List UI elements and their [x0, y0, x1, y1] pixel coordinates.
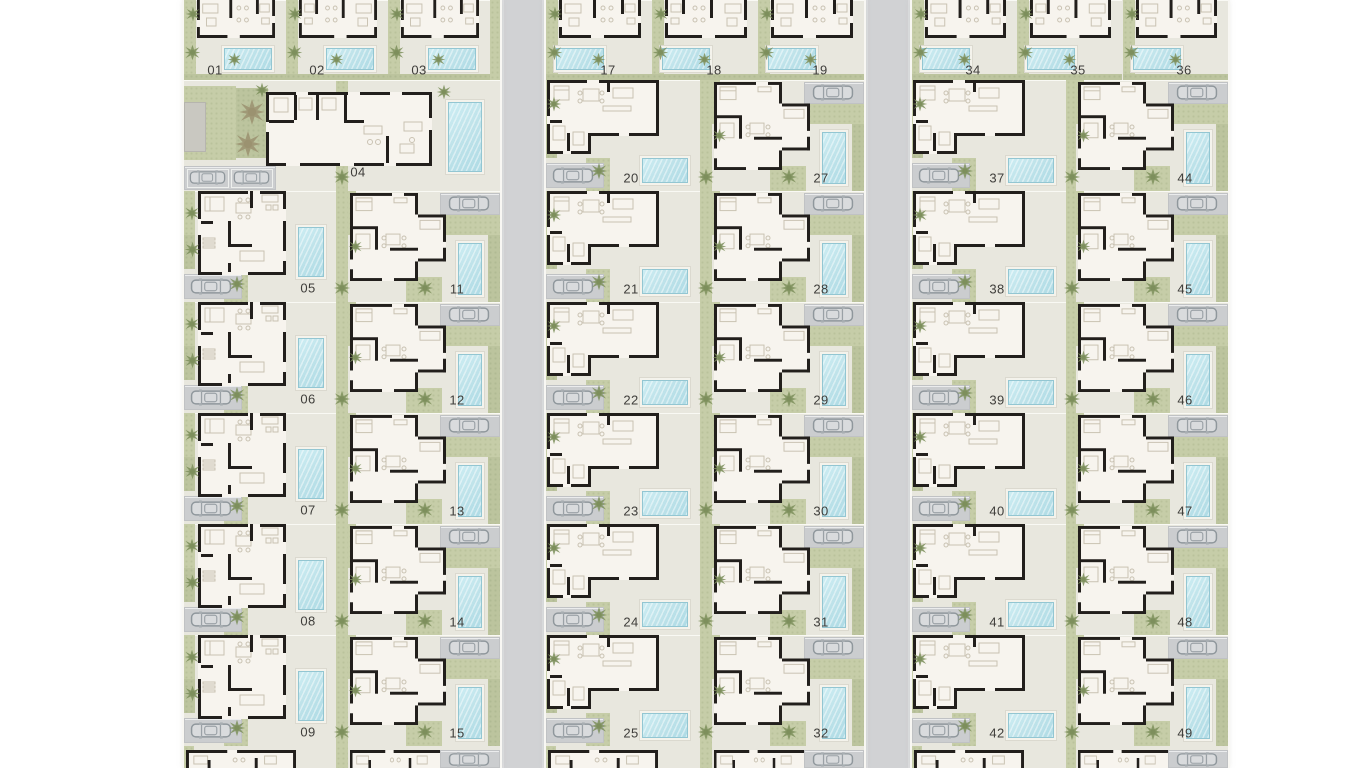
garden-strip [488, 235, 500, 302]
house-floorplan [1030, 0, 1111, 38]
house-floorplan [1078, 750, 1172, 768]
house-floorplan [665, 0, 747, 38]
plot-number: 35 [1070, 63, 1085, 78]
car-icon [552, 278, 594, 295]
car-icon [1176, 84, 1218, 101]
plot-number: 29 [813, 393, 828, 408]
car-icon [812, 84, 854, 101]
plot-number: 28 [813, 282, 828, 297]
tree-icon [184, 574, 201, 591]
plot-top: 02 [286, 0, 388, 80]
plot-number: 27 [813, 171, 828, 186]
house-floorplan [548, 750, 658, 768]
tree-icon [184, 463, 201, 480]
plot: 31 [712, 524, 864, 635]
garden-strip [1216, 124, 1228, 191]
house-floorplan [913, 191, 1025, 265]
tree-icon [184, 685, 201, 702]
plot-number: 11 [450, 282, 464, 297]
tree-icon [184, 44, 201, 61]
garden-strip [852, 346, 864, 413]
tree-icon [1076, 350, 1091, 365]
tree-icon [329, 52, 344, 67]
house-floorplan [186, 750, 296, 768]
tree-icon [546, 318, 562, 334]
car-icon [1176, 639, 1218, 656]
garden-strip [490, 0, 500, 80]
plot: 32 [712, 635, 864, 746]
tree-icon [956, 495, 974, 513]
tree-icon [1017, 44, 1034, 61]
car-icon [812, 417, 854, 434]
car-icon [552, 500, 594, 517]
house-floorplan [913, 80, 1025, 154]
pool [446, 100, 484, 174]
plot-number: 05 [300, 281, 315, 296]
garden-strip [1166, 215, 1228, 235]
tree-icon [228, 386, 246, 404]
tree-icon [956, 384, 974, 402]
tree-icon [1076, 128, 1091, 143]
tree-icon [228, 719, 246, 737]
tree-icon [546, 429, 562, 445]
tree-icon [1018, 6, 1034, 22]
house-floorplan [1078, 415, 1174, 503]
plot-number: 15 [449, 726, 464, 741]
plot-number: 20 [623, 171, 638, 186]
plot: 09 [184, 635, 336, 746]
plot-number: 01 [207, 63, 222, 78]
tree-icon [912, 96, 928, 112]
plot: 07 [184, 413, 336, 524]
car-icon [190, 389, 232, 406]
plot-number: 37 [989, 171, 1004, 186]
car-icon [812, 195, 854, 212]
utility-building [184, 102, 206, 152]
house-floorplan [1136, 0, 1217, 38]
car-icon [1176, 195, 1218, 212]
house-floorplan [350, 193, 446, 281]
house-floorplan [559, 0, 641, 38]
site-plan: 0102030506070809111213141504171819202122… [0, 0, 1366, 768]
tree-icon [546, 44, 563, 61]
house-floorplan [350, 304, 446, 392]
tree-icon [184, 352, 201, 369]
pool [1006, 267, 1056, 296]
plot: 05 [184, 191, 336, 302]
pool [296, 225, 326, 279]
garden-strip [1216, 568, 1228, 635]
plot-top: 34 [912, 0, 1017, 80]
plot-number: 31 [813, 615, 828, 630]
garden-divider [1066, 746, 1076, 768]
tree-icon [348, 683, 363, 698]
car-icon [552, 167, 594, 184]
tree-icon [416, 501, 434, 519]
tree-icon [590, 606, 608, 624]
plot-top: 18 [652, 0, 758, 80]
garden-strip [802, 437, 864, 457]
plot-number: 25 [623, 726, 638, 741]
tree-icon [780, 390, 798, 408]
garden-strip [802, 548, 864, 568]
pool [296, 336, 326, 390]
tree-icon [1144, 501, 1162, 519]
plot: 21 [546, 191, 700, 302]
garden-strip [852, 679, 864, 746]
plot-number: 39 [989, 393, 1004, 408]
house-floorplan [714, 193, 810, 281]
tree-icon [184, 316, 200, 332]
tree-icon [416, 612, 434, 630]
house-floorplan [1078, 526, 1174, 614]
plot-number: 32 [813, 726, 828, 741]
plot: 49 [1076, 635, 1228, 746]
tree-icon [759, 6, 775, 22]
car-icon [812, 752, 854, 767]
tree-icon [1144, 390, 1162, 408]
tree-icon [287, 6, 303, 22]
plot: 11 [348, 191, 500, 302]
plot-top: 36 [1123, 0, 1228, 80]
house-floorplan [1078, 193, 1174, 281]
plot-number: 30 [813, 504, 828, 519]
tree-icon [348, 461, 363, 476]
tree-icon [590, 717, 608, 735]
garden-strip [852, 457, 864, 524]
car-icon [190, 500, 232, 517]
tree-icon [912, 207, 928, 223]
tree-icon [184, 241, 201, 258]
pool [1006, 711, 1056, 740]
pool [1006, 156, 1056, 185]
plot: 44 [1076, 80, 1228, 191]
car-icon [918, 722, 960, 739]
tree-icon [286, 44, 303, 61]
plot-number: 14 [449, 615, 464, 630]
road [866, 0, 910, 768]
plot: 15 [348, 635, 500, 746]
house-floorplan [914, 750, 1024, 768]
tree-icon [184, 649, 200, 665]
car-icon [812, 306, 854, 323]
tree-icon [590, 495, 608, 513]
plot-number: 42 [989, 726, 1004, 741]
plot: 06 [184, 302, 336, 413]
plot-number: 45 [1177, 282, 1192, 297]
house-floorplan [547, 302, 659, 376]
tree-icon [1144, 612, 1162, 630]
tree-icon [1076, 572, 1091, 587]
pool [640, 489, 690, 518]
plot-number: 48 [1177, 615, 1192, 630]
car-icon [918, 167, 960, 184]
car-icon [190, 722, 232, 739]
tree-icon [227, 52, 242, 67]
plot-top: 19 [758, 0, 864, 80]
house-floorplan [266, 92, 432, 166]
tree-icon [1076, 683, 1091, 698]
plot-number: 03 [411, 63, 426, 78]
plot-top: 17 [546, 0, 652, 80]
house-floorplan [714, 637, 810, 725]
plot: 46 [1076, 302, 1228, 413]
garden-strip [488, 568, 500, 635]
tree-icon [712, 239, 727, 254]
car-icon [552, 722, 594, 739]
road [502, 0, 544, 768]
plot-number: 09 [300, 725, 315, 740]
plot-number: 44 [1177, 171, 1192, 186]
tree-icon [780, 168, 798, 186]
plot-number: 04 [350, 165, 365, 180]
house-floorplan [714, 750, 808, 768]
tree-icon [652, 44, 669, 61]
garden-strip [1166, 659, 1228, 679]
clubhouse-plot: 04 [184, 80, 500, 191]
plot-top: 35 [1017, 0, 1122, 80]
pool [296, 447, 326, 501]
tree-icon [912, 651, 928, 667]
garden-strip [488, 346, 500, 413]
plot: 39 [912, 302, 1066, 413]
plot-number: 13 [449, 504, 464, 519]
plot-number: 38 [989, 282, 1004, 297]
plot-number: 07 [300, 503, 315, 518]
plot: 40 [912, 413, 1066, 524]
house-floorplan [350, 526, 446, 614]
house-floorplan [198, 191, 286, 275]
garden-strip [1216, 457, 1228, 524]
tree-icon [228, 275, 246, 293]
car-icon [1176, 528, 1218, 545]
plot: 25 [546, 635, 700, 746]
plot: 42 [912, 635, 1066, 746]
garden-strip [802, 659, 864, 679]
tree-icon [388, 44, 405, 61]
garden-strip [438, 326, 500, 346]
car-icon [552, 389, 594, 406]
car-icon [1176, 752, 1218, 767]
tree-icon [228, 497, 246, 515]
plot-number: 41 [989, 615, 1004, 630]
block-west: 0102030506070809111213141504 [184, 0, 500, 768]
tree-icon [590, 162, 608, 180]
garden-strip [1166, 548, 1228, 568]
plot-number: 23 [623, 504, 638, 519]
plot: 12 [348, 302, 500, 413]
plot-number: 47 [1177, 504, 1192, 519]
tree-icon [912, 540, 928, 556]
tree-icon [1076, 461, 1091, 476]
plot: 41 [912, 524, 1066, 635]
plot-top: 01 [184, 0, 286, 80]
house-floorplan [771, 0, 853, 38]
garden-strip [488, 679, 500, 746]
plot: 13 [348, 413, 500, 524]
house-floorplan [1078, 637, 1174, 725]
plot-top: 03 [388, 0, 490, 80]
tree-icon [416, 279, 434, 297]
house-floorplan [1078, 304, 1174, 392]
garden-strip [852, 235, 864, 302]
plot-number: 40 [989, 504, 1004, 519]
house-floorplan [925, 0, 1006, 38]
pool [296, 669, 326, 723]
tree-icon [348, 572, 363, 587]
tree-icon [389, 6, 405, 22]
garden-strip [852, 124, 864, 191]
tree-icon [547, 6, 563, 22]
car-icon [448, 306, 490, 323]
house-floorplan [913, 524, 1025, 598]
tree-icon [956, 273, 974, 291]
tree-icon [780, 612, 798, 630]
garden-strip [1216, 346, 1228, 413]
pool [1006, 378, 1056, 407]
plot: 30 [712, 413, 864, 524]
house-floorplan [547, 191, 659, 265]
plot-number: 06 [300, 392, 315, 407]
tree-icon [712, 461, 727, 476]
garden-strip [438, 215, 500, 235]
house-floorplan [198, 524, 286, 608]
tree-icon [1123, 44, 1140, 61]
house-floorplan [1078, 82, 1174, 170]
car-icon [918, 389, 960, 406]
garden-strip [488, 457, 500, 524]
garden-strip [438, 659, 500, 679]
plot: 37 [912, 80, 1066, 191]
house-floorplan [913, 635, 1025, 709]
car-icon [448, 417, 490, 434]
tree-icon [912, 318, 928, 334]
pool [640, 267, 690, 296]
tree-icon [712, 350, 727, 365]
house-floorplan [198, 302, 286, 386]
plot-number: 49 [1177, 726, 1192, 741]
plot-number: 02 [309, 63, 324, 78]
plot: 23 [546, 413, 700, 524]
plot-number: 34 [965, 63, 980, 78]
garden-divider [336, 746, 348, 768]
tree-icon [546, 540, 562, 556]
garden-strip [852, 568, 864, 635]
house-floorplan [547, 524, 659, 598]
tree-icon [546, 96, 562, 112]
plot-number: 17 [600, 63, 615, 78]
garden-strip [438, 437, 500, 457]
plot-number: 46 [1177, 393, 1192, 408]
car-icon [1176, 306, 1218, 323]
tree-icon [712, 683, 727, 698]
house-floorplan [913, 413, 1025, 487]
car-icon [448, 639, 490, 656]
plot-number: 24 [623, 615, 638, 630]
house-floorplan [547, 635, 659, 709]
tree-icon [1124, 6, 1140, 22]
tree-icon [590, 273, 608, 291]
car-icon [448, 528, 490, 545]
car-icon [918, 278, 960, 295]
tree-icon [780, 723, 798, 741]
tree-icon [956, 162, 974, 180]
tree-icon [184, 205, 200, 221]
garden-strip [802, 215, 864, 235]
house-floorplan [547, 80, 659, 154]
tree-icon [956, 606, 974, 624]
plot: 22 [546, 302, 700, 413]
pool [640, 156, 690, 185]
plot-number: 12 [449, 393, 464, 408]
block-east: 343536373839404142444546474849 [912, 0, 1228, 768]
palm-tree-icon [238, 98, 266, 126]
tree-icon [590, 384, 608, 402]
house-floorplan [714, 82, 810, 170]
house-floorplan [198, 413, 286, 497]
plot: 45 [1076, 191, 1228, 302]
house-floorplan [913, 302, 1025, 376]
garden-strip [1166, 437, 1228, 457]
car-icon [190, 611, 232, 628]
tree-icon [956, 717, 974, 735]
tree-icon [184, 427, 200, 443]
tree-icon [436, 84, 452, 100]
pool [640, 378, 690, 407]
garden-strip [802, 104, 864, 124]
plot-number: 08 [300, 614, 315, 629]
tree-icon [185, 6, 201, 22]
garden-strip [1166, 104, 1228, 124]
tree-icon [780, 279, 798, 297]
tree-icon [416, 723, 434, 741]
garden-strip [1166, 326, 1228, 346]
tree-icon [431, 52, 446, 67]
plot: 38 [912, 191, 1066, 302]
tree-icon [546, 651, 562, 667]
garden-divider [700, 746, 712, 768]
house-floorplan [714, 526, 810, 614]
plot: 14 [348, 524, 500, 635]
tree-icon [546, 207, 562, 223]
plot: 48 [1076, 524, 1228, 635]
plot: 24 [546, 524, 700, 635]
car-icon [812, 639, 854, 656]
plot-number: 22 [623, 393, 638, 408]
garden-strip [1216, 235, 1228, 302]
house-floorplan [401, 0, 479, 38]
plot: 08 [184, 524, 336, 635]
plot-number: 36 [1176, 63, 1191, 78]
garden-strip [1216, 679, 1228, 746]
car-icon [233, 170, 270, 185]
plot: 47 [1076, 413, 1228, 524]
pool [1006, 600, 1056, 629]
tree-icon [1144, 168, 1162, 186]
car-icon [918, 611, 960, 628]
tree-icon [712, 128, 727, 143]
tree-icon [184, 538, 200, 554]
house-floorplan [197, 0, 275, 38]
car-icon [448, 752, 490, 767]
tree-icon [1144, 723, 1162, 741]
tree-icon [348, 239, 363, 254]
tree-icon [913, 6, 929, 22]
car-icon [189, 170, 226, 185]
tree-icon [712, 572, 727, 587]
tree-icon [348, 350, 363, 365]
garden-strip [802, 326, 864, 346]
